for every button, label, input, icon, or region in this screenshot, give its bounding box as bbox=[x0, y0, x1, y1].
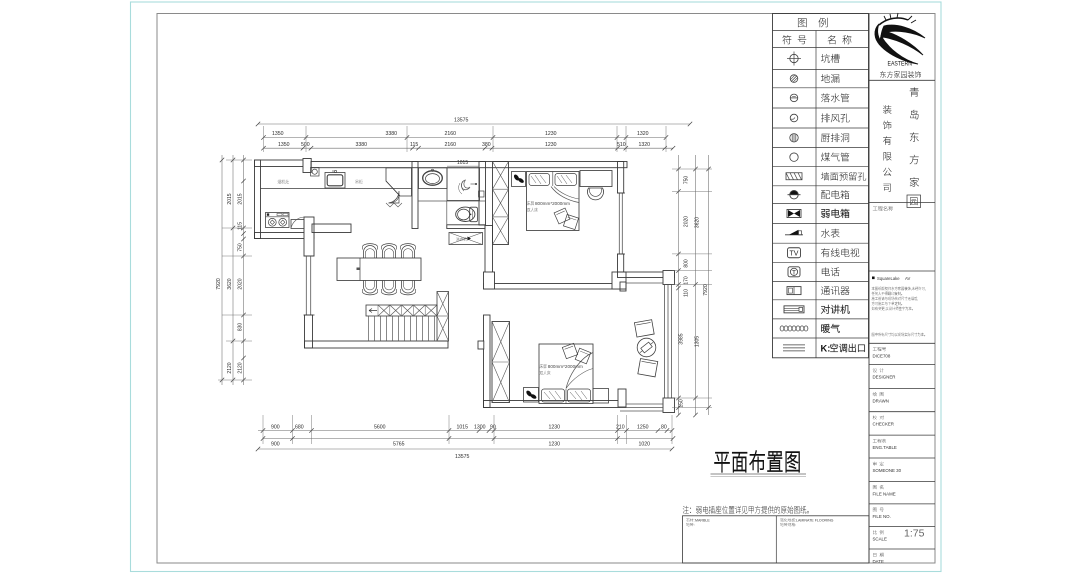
svg-text:1020: 1020 bbox=[639, 442, 651, 448]
svg-text:150: 150 bbox=[679, 399, 685, 408]
svg-text:1015: 1015 bbox=[457, 160, 468, 166]
svg-text:2160: 2160 bbox=[445, 131, 457, 137]
svg-text:1320: 1320 bbox=[637, 131, 649, 137]
svg-text:510: 510 bbox=[617, 142, 626, 148]
svg-text:90: 90 bbox=[490, 425, 496, 431]
svg-text:3985: 3985 bbox=[679, 333, 685, 344]
svg-text:13575: 13575 bbox=[455, 454, 470, 460]
svg-text:1015: 1015 bbox=[457, 425, 469, 431]
svg-text:500: 500 bbox=[301, 142, 310, 148]
svg-text:CHECKER: CHECKER bbox=[873, 422, 894, 427]
svg-text:2120: 2120 bbox=[227, 362, 233, 373]
svg-text:900: 900 bbox=[271, 442, 280, 448]
svg-text:1250: 1250 bbox=[637, 425, 649, 431]
svg-text:2120: 2120 bbox=[238, 362, 244, 373]
svg-text:FILE NAME: FILE NAME bbox=[873, 491, 896, 496]
svg-text:DATE: DATE bbox=[873, 559, 884, 564]
svg-text:AV: AV bbox=[905, 276, 910, 281]
svg-text:EASTERN: EASTERN bbox=[888, 61, 913, 68]
svg-text:2015: 2015 bbox=[227, 193, 233, 204]
svg-text:1350: 1350 bbox=[272, 131, 284, 137]
svg-text:380: 380 bbox=[482, 142, 491, 148]
svg-text:800: 800 bbox=[684, 259, 690, 268]
svg-text:7920: 7920 bbox=[703, 284, 709, 296]
svg-text:115: 115 bbox=[238, 222, 244, 230]
svg-text:1320: 1320 bbox=[639, 142, 651, 148]
svg-text:3380: 3380 bbox=[356, 142, 368, 148]
svg-text:1305: 1305 bbox=[695, 336, 701, 347]
svg-text:7920: 7920 bbox=[216, 278, 222, 290]
svg-text:K:: K: bbox=[821, 344, 831, 354]
svg-text:3620: 3620 bbox=[227, 278, 233, 289]
svg-text:2015: 2015 bbox=[238, 193, 244, 204]
svg-text:LAMINATE FLOORING: LAMINATE FLOORING bbox=[796, 519, 834, 523]
svg-text:750: 750 bbox=[238, 243, 244, 252]
svg-text:800mm*2000mm: 800mm*2000mm bbox=[535, 201, 570, 206]
svg-text:DRAWN: DRAWN bbox=[873, 398, 889, 403]
svg-text:80: 80 bbox=[661, 425, 667, 431]
svg-text:1:75: 1:75 bbox=[904, 528, 925, 540]
svg-text:DICE708: DICE708 bbox=[873, 353, 891, 358]
svg-text:1300: 1300 bbox=[474, 425, 486, 431]
svg-text:2160: 2160 bbox=[445, 142, 457, 148]
svg-text:13575: 13575 bbox=[454, 118, 469, 124]
svg-text:SCALE: SCALE bbox=[873, 537, 887, 542]
svg-text:SquareLake: SquareLake bbox=[877, 276, 900, 281]
svg-text:1230: 1230 bbox=[549, 425, 561, 431]
svg-text:1230: 1230 bbox=[545, 142, 557, 148]
svg-text:830: 830 bbox=[238, 323, 244, 332]
svg-text:ENG.TABLE: ENG.TABLE bbox=[873, 445, 897, 450]
svg-text:800mm*2000mm: 800mm*2000mm bbox=[548, 364, 583, 369]
svg-text:1350: 1350 bbox=[278, 142, 290, 148]
svg-text:680: 680 bbox=[295, 425, 304, 431]
svg-text:170: 170 bbox=[684, 276, 690, 285]
svg-text:SOMEONE 30: SOMEONE 30 bbox=[873, 468, 902, 473]
svg-text:900: 900 bbox=[271, 425, 280, 431]
svg-text:DESIGNER: DESIGNER bbox=[873, 375, 896, 380]
svg-text:2020: 2020 bbox=[238, 278, 244, 289]
svg-text:FILE NO.: FILE NO. bbox=[873, 514, 891, 519]
svg-text:MARBLE: MARBLE bbox=[695, 519, 710, 523]
svg-text:3620: 3620 bbox=[695, 217, 701, 228]
svg-text:1230: 1230 bbox=[549, 442, 561, 448]
svg-text:110: 110 bbox=[684, 289, 690, 297]
svg-text:3380: 3380 bbox=[386, 131, 398, 137]
svg-text:5600: 5600 bbox=[374, 425, 386, 431]
svg-text:1230: 1230 bbox=[545, 131, 557, 137]
svg-text:2020: 2020 bbox=[684, 216, 690, 227]
svg-text:115: 115 bbox=[410, 142, 418, 148]
svg-text:750: 750 bbox=[684, 176, 690, 185]
svg-text:T: T bbox=[792, 269, 796, 276]
svg-text:5765: 5765 bbox=[393, 442, 405, 448]
svg-text:TV: TV bbox=[790, 250, 799, 257]
